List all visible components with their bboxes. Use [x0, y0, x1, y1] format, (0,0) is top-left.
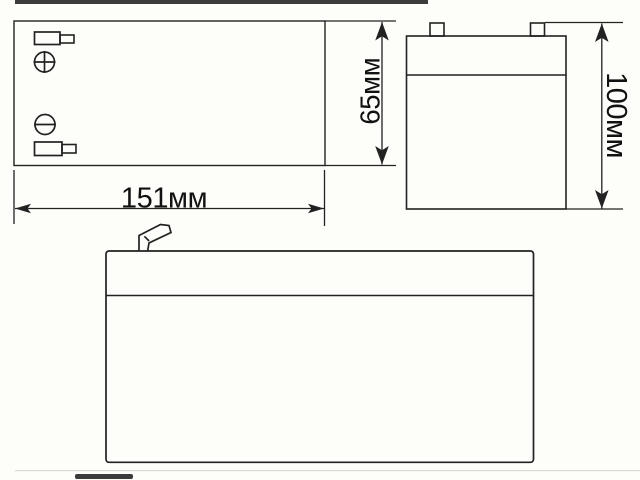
svg-text:151мм: 151мм — [121, 182, 207, 214]
svg-text:65мм: 65мм — [355, 58, 386, 125]
svg-text:100мм: 100мм — [600, 72, 632, 158]
